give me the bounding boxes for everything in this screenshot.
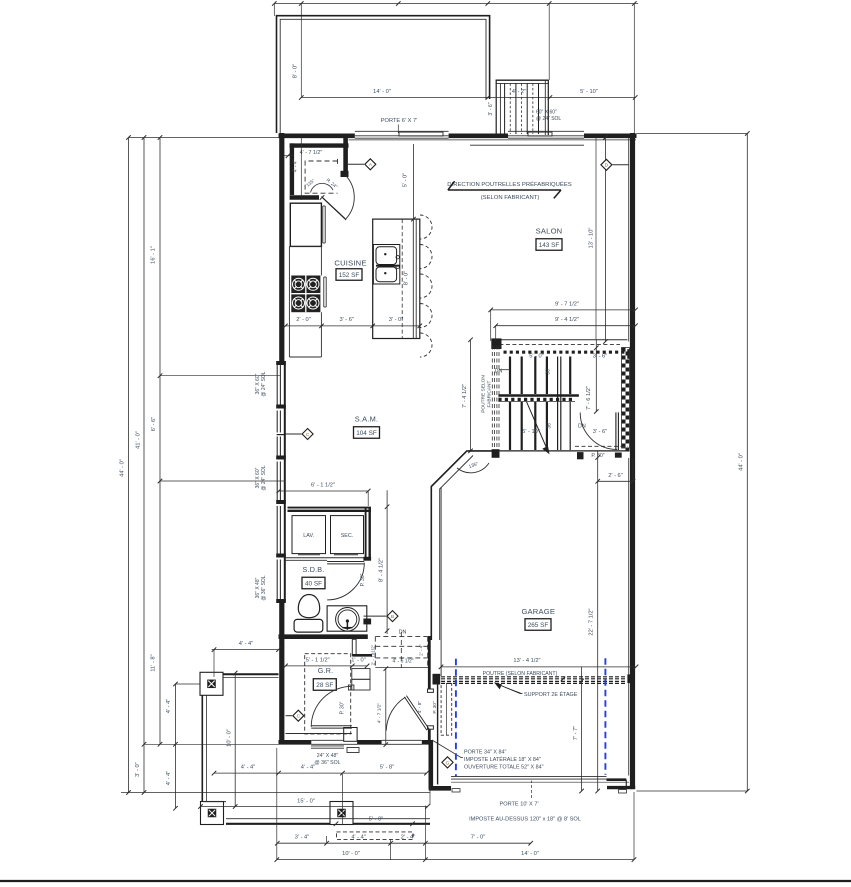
svg-text:44' - 0": 44' - 0" <box>120 459 126 477</box>
svg-text:4' - 7 1/2": 4' - 7 1/2" <box>300 150 323 156</box>
svg-text:2' - 101/2": 2' - 101/2" <box>371 644 376 665</box>
svg-text:SALON: SALON <box>536 227 563 236</box>
svg-text:2' - 6": 2' - 6" <box>608 473 623 479</box>
svg-text:5' - 8": 5' - 8" <box>380 765 395 771</box>
svg-text:S.A.M.: S.A.M. <box>355 415 378 424</box>
svg-text:@ 24" SOL: @ 24" SOL <box>536 116 561 122</box>
svg-text:14' - 0": 14' - 0" <box>521 851 539 857</box>
svg-text:PORTE 6' X 7': PORTE 6' X 7' <box>381 118 418 124</box>
svg-text:C: C <box>297 714 301 720</box>
svg-text:D: D <box>605 163 609 169</box>
svg-text:4' - 4": 4' - 4" <box>166 771 172 786</box>
svg-text:5' - 0": 5' - 0" <box>369 817 384 823</box>
svg-text:8' - 4 1/2": 8' - 4 1/2" <box>378 558 384 582</box>
svg-text:28 SF: 28 SF <box>316 682 333 689</box>
svg-text:SUPPORT 2E ÉTAGE: SUPPORT 2E ÉTAGE <box>524 691 578 698</box>
svg-text:13' - 4 1/2": 13' - 4 1/2" <box>513 658 540 664</box>
svg-text:POUTRE (SELON FABRICANT): POUTRE (SELON FABRICANT) <box>483 671 558 677</box>
svg-text:PORTE 10' X 7': PORTE 10' X 7' <box>499 802 538 808</box>
svg-text:22' - 7 1/2": 22' - 7 1/2" <box>589 608 595 635</box>
svg-text:41' - 0": 41' - 0" <box>136 431 142 449</box>
svg-text:4' - 7 1/2": 4' - 7 1/2" <box>377 703 383 724</box>
svg-text:DN: DN <box>495 369 503 375</box>
svg-text:IMPOSTE AU-DESSUS 120" x 18" @: IMPOSTE AU-DESSUS 120" x 18" @ 8' SOL <box>469 817 581 823</box>
svg-text:GARAGE: GARAGE <box>521 607 555 616</box>
svg-text:1' - 0": 1' - 0" <box>351 657 366 663</box>
svg-text:4' - 2": 4' - 2" <box>512 89 527 95</box>
svg-text:5' - 10": 5' - 10" <box>580 89 598 95</box>
svg-text:4' - 6 1/2": 4' - 6 1/2" <box>392 659 413 665</box>
svg-text:60" X 60": 60" X 60" <box>536 110 557 116</box>
svg-text:40 SF: 40 SF <box>305 580 322 587</box>
svg-text:15' - 0": 15' - 0" <box>297 799 315 805</box>
svg-text:S.D.B.: S.D.B. <box>303 565 325 574</box>
svg-text:DN: DN <box>399 630 407 636</box>
svg-text:4' - 4": 4' - 4" <box>301 765 316 771</box>
svg-text:36": 36" <box>546 367 552 375</box>
svg-text:104 SF: 104 SF <box>356 430 377 437</box>
svg-text:3' - 6": 3' - 6" <box>593 354 608 360</box>
svg-text:3' - 0": 3' - 0" <box>135 762 141 777</box>
svg-text:152 SF: 152 SF <box>339 272 360 279</box>
svg-text:@ 36" SOL: @ 36" SOL <box>314 760 340 766</box>
svg-text:4' - 8": 4' - 8" <box>417 701 423 714</box>
svg-text:3' - 6": 3' - 6" <box>593 429 608 435</box>
svg-text:7' - 6 1/2": 7' - 6 1/2" <box>586 386 592 410</box>
svg-text:6' - 6": 6' - 6" <box>151 417 157 432</box>
svg-text:@ 24" SOL: @ 24" SOL <box>261 465 267 490</box>
svg-text:@ 36" SOL: @ 36" SOL <box>261 575 267 600</box>
svg-text:C: C <box>306 432 310 438</box>
svg-text:44' - 0": 44' - 0" <box>738 453 744 471</box>
svg-text:16' - 1": 16' - 1" <box>150 246 156 264</box>
svg-text:2' - 4": 2' - 4" <box>419 644 424 656</box>
svg-text:3' - 6": 3' - 6" <box>488 102 494 115</box>
svg-text:G: G <box>446 760 450 766</box>
svg-text:8' - 0": 8' - 0" <box>293 64 299 79</box>
svg-text:4' - 4": 4' - 4" <box>241 765 256 771</box>
svg-text:B: B <box>391 614 394 620</box>
svg-text:11' - 8": 11' - 8" <box>150 654 156 671</box>
svg-text:7' - 0": 7' - 0" <box>471 835 486 841</box>
svg-text:FABRICANT: FABRICANT <box>486 380 492 407</box>
svg-text:5' - 0": 5' - 0" <box>529 354 544 360</box>
svg-text:24" X 48": 24" X 48" <box>317 753 339 759</box>
svg-text:3' - 0": 3' - 0" <box>389 317 404 323</box>
svg-text:4' - 4": 4' - 4" <box>293 159 299 172</box>
svg-text:SEC.: SEC. <box>341 533 354 539</box>
svg-text:13' - 10": 13' - 10" <box>589 228 595 249</box>
svg-text:10' - 0": 10' - 0" <box>342 851 360 857</box>
svg-text:4' - 4": 4' - 4" <box>166 699 172 714</box>
svg-text:8' - 0": 8' - 0" <box>404 271 410 286</box>
svg-text:4' - 4": 4' - 4" <box>351 835 366 841</box>
svg-text:5' - 10": 5' - 10" <box>522 429 540 435</box>
svg-text:4' - 4": 4' - 4" <box>239 641 254 647</box>
svg-text:DIRECTION POUTRELLES PRÉFABRIQ: DIRECTION POUTRELLES PRÉFABRIQUÉES <box>447 181 571 188</box>
svg-text:LAV.: LAV. <box>303 533 314 539</box>
svg-text:P. 30": P. 30" <box>360 573 366 586</box>
svg-text:7' - 7": 7' - 7" <box>573 726 579 741</box>
svg-text:9' - 7 1/2": 9' - 7 1/2" <box>555 301 579 307</box>
svg-text:G.R.: G.R. <box>318 666 334 675</box>
svg-text:36": 36" <box>547 421 553 429</box>
svg-text:POUTRE SELON: POUTRE SELON <box>481 375 487 413</box>
svg-text:OUVERTURE TOTALE 52" X 84": OUVERTURE TOTALE 52" X 84" <box>464 765 544 771</box>
svg-text:5' - 1 1/2": 5' - 1 1/2" <box>306 657 330 663</box>
svg-text:5' - 0": 5' - 0" <box>403 173 409 188</box>
svg-text:PORTE 34" X 84": PORTE 34" X 84" <box>464 750 506 756</box>
svg-text:2' - 4": 2' - 4" <box>401 835 416 841</box>
svg-text:2' - 0": 2' - 0" <box>296 317 311 323</box>
svg-text:14' - 0": 14' - 0" <box>373 89 391 95</box>
svg-text:7' - 4 1/2": 7' - 4 1/2" <box>462 384 468 408</box>
svg-text:6' - 1 1/2": 6' - 1 1/2" <box>311 483 335 489</box>
svg-text:143 SF: 143 SF <box>539 242 560 249</box>
svg-text:9' - 4 1/2": 9' - 4 1/2" <box>555 317 579 323</box>
svg-text:P. 30": P. 30" <box>339 701 345 714</box>
svg-text:265 SF: 265 SF <box>528 622 549 629</box>
svg-text:@ 24" SOL: @ 24" SOL <box>261 371 267 396</box>
svg-text:3' - 6": 3' - 6" <box>339 317 354 323</box>
svg-text:CUISINE: CUISINE <box>334 259 366 268</box>
svg-text:(SELON FABRICANT): (SELON FABRICANT) <box>481 195 540 201</box>
svg-text:3' - 4": 3' - 4" <box>295 835 310 841</box>
svg-text:IMPOSTE LATÉRALE 18" X 84": IMPOSTE LATÉRALE 18" X 84" <box>464 756 541 763</box>
